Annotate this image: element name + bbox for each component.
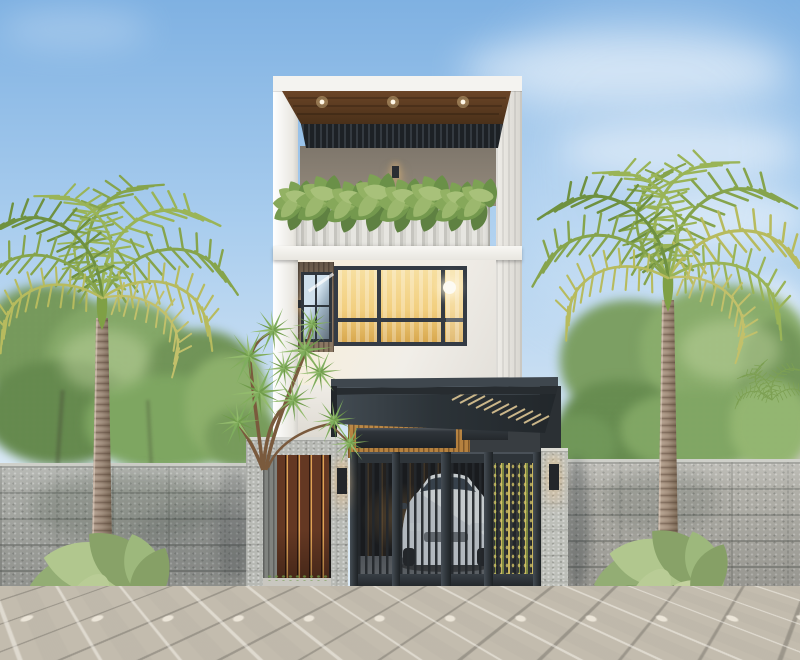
curtain-highlight — [446, 270, 463, 342]
broadleaf-cluster — [570, 512, 744, 653]
gate-bars — [358, 462, 392, 576]
roof-canopy — [270, 70, 530, 170]
street-plants-left — [30, 530, 190, 640]
street-plants-right — [595, 525, 755, 635]
floor-slab — [273, 246, 522, 260]
canopy-louver-band — [301, 124, 503, 148]
gate-bars — [400, 462, 441, 576]
distant-mini-palm — [735, 356, 800, 410]
stage — [0, 0, 800, 660]
palm-crown — [0, 164, 238, 377]
balcony-plants — [285, 160, 500, 220]
gate-bars — [451, 462, 484, 576]
window-mullion — [441, 270, 445, 342]
door-wall-lamp — [337, 468, 347, 494]
gate-stile — [392, 452, 400, 586]
window-mullion — [377, 270, 381, 342]
perforated-gate-panel — [492, 462, 533, 576]
canopy-wood-ceiling — [282, 91, 511, 124]
gate-stile — [350, 452, 358, 586]
palm-frond — [0, 255, 109, 353]
gate-stile — [441, 452, 451, 586]
wood-slat-door — [277, 455, 329, 580]
gate-stile — [484, 452, 493, 586]
